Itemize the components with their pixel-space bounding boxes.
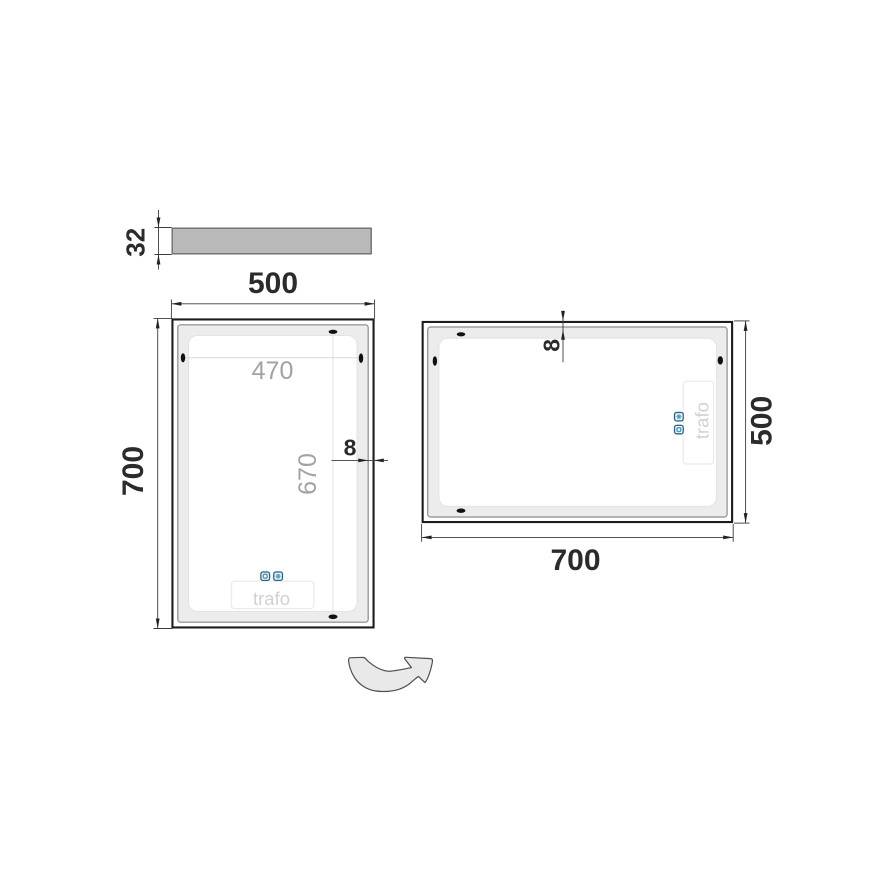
svg-text:500: 500 (745, 396, 778, 446)
svg-text:8: 8 (539, 339, 565, 352)
svg-text:670: 670 (294, 453, 322, 495)
svg-text:700: 700 (117, 446, 150, 496)
svg-text:trafo: trafo (691, 402, 712, 439)
svg-text:trafo: trafo (253, 588, 290, 609)
svg-text:500: 500 (248, 267, 298, 300)
svg-text:700: 700 (550, 544, 600, 577)
svg-text:32: 32 (121, 228, 151, 257)
svg-text:470: 470 (252, 357, 294, 385)
svg-text:8: 8 (344, 435, 357, 461)
